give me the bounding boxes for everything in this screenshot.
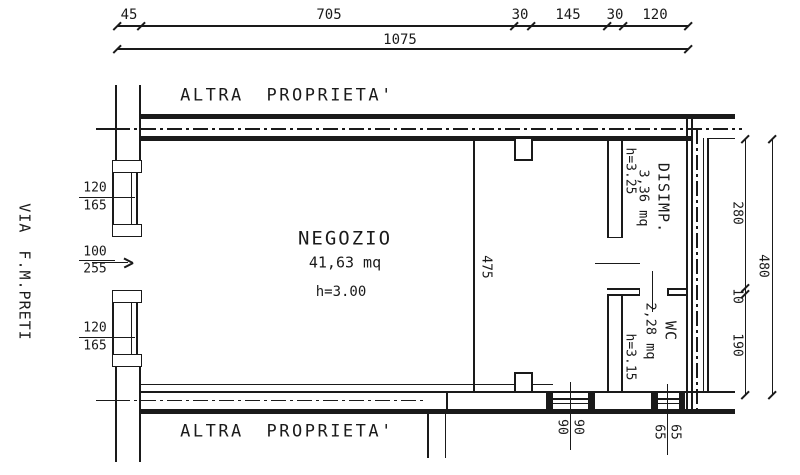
- window-glazing-line: [112, 173, 114, 224]
- label-wc-window-height: 65: [669, 424, 682, 440]
- wall-partition: [607, 141, 609, 238]
- wall-left-outer: [115, 367, 117, 462]
- window-post: [588, 393, 595, 409]
- label-height-negozio: h=3.00: [316, 285, 367, 299]
- window-sill-box: [112, 290, 142, 303]
- wall-wc-top-jamb: [639, 288, 641, 296]
- boundary-tick-left-bottom: [96, 400, 116, 402]
- label-altra-proprieta-top: ALTRA PROPRIETA': [180, 88, 394, 105]
- dim-label-120: 120: [642, 8, 667, 22]
- label-wc-window-width: 65: [653, 424, 666, 440]
- wall-wc-top: [607, 294, 640, 296]
- label-shop-window-width: 90: [556, 419, 569, 435]
- label-area-disimpegno: 3,36 mq: [636, 163, 652, 233]
- window-post: [546, 393, 553, 409]
- window-glazing-line: [136, 173, 138, 224]
- threshold-line: [595, 263, 640, 264]
- window-glazing-line: [131, 173, 133, 224]
- label-altra-proprieta-bottom: ALTRA PROPRIETA': [180, 424, 394, 441]
- window-glazing-line: [658, 398, 679, 400]
- window-glazing-line: [136, 303, 138, 354]
- window-post: [651, 393, 658, 409]
- wall-bottom-inner: [532, 384, 553, 386]
- wall-neighbor-right-top: [707, 138, 735, 140]
- boundary-tick-left-top: [96, 128, 116, 130]
- wall-neighbor-right: [703, 138, 705, 392]
- label-window-upper-width: 120: [83, 182, 106, 195]
- wall-left-outer: [115, 85, 117, 160]
- dim-label-190: 190: [731, 333, 744, 356]
- wall-wc-top: [667, 288, 686, 290]
- wall-bottom-inner: [139, 384, 515, 386]
- label-door-height: 255: [83, 263, 106, 276]
- label-area-wc: 2,28 mq: [643, 303, 659, 360]
- wall-left-inner: [139, 367, 141, 462]
- window-glazing-line: [112, 303, 114, 354]
- pillar-bottom: [514, 372, 533, 392]
- wall-wc-top: [607, 288, 640, 290]
- label-window-upper-height: 165: [83, 200, 106, 213]
- wall-neighbor-bottom-stub: [445, 414, 447, 458]
- wall-unit-top: [139, 136, 693, 141]
- dim-ext-line-wc-window: [667, 384, 668, 455]
- label-room-wc: WC: [662, 303, 680, 360]
- dim-label-30b: 30: [607, 8, 624, 22]
- dim-label-10: 10: [731, 288, 744, 304]
- label-height-wc: h=3.15: [624, 334, 637, 381]
- wall-bottom-mid: [139, 391, 735, 393]
- wall-wc-top: [667, 294, 686, 296]
- wall-neighbor-bottom-stub: [427, 414, 429, 458]
- wall-wc-top-jamb: [667, 288, 669, 296]
- dim-line-right-total: [772, 139, 774, 395]
- window-glazing-line: [658, 403, 679, 405]
- dim-line-right-segments: [745, 139, 747, 395]
- floor-plan: 45 705 30 145 30 120 1075 ALTRA PROPRIET…: [0, 0, 800, 475]
- window-post: [679, 393, 686, 409]
- dim-label-145: 145: [555, 8, 580, 22]
- window-glazing-line: [131, 303, 133, 354]
- window-sill-box: [112, 354, 142, 367]
- label-room-negozio: NEGOZIO: [298, 230, 392, 249]
- dim-label-total-1075: 1075: [383, 33, 417, 47]
- dim-label-45: 45: [121, 8, 138, 22]
- label-area-negozio: 41,63 mq: [309, 256, 381, 271]
- room-block-disimpegno: DISIMP. 3,36 mq: [636, 163, 673, 233]
- dim-label-interior-depth: 475: [480, 255, 493, 278]
- dim-ext-line-shop-window: [570, 382, 571, 450]
- wall-right: [691, 119, 693, 410]
- wall-left-inner: [139, 85, 141, 160]
- label-shop-window-height: 90: [572, 419, 585, 435]
- wall-partition-end: [607, 237, 623, 239]
- boundary-dashdot-bottom: [115, 400, 427, 402]
- wall-right: [686, 119, 688, 410]
- boundary-dashdot-right: [696, 129, 698, 410]
- room-block-wc: WC 2,28 mq: [643, 303, 680, 360]
- dim-line-interior-depth: [473, 141, 475, 391]
- label-door-width: 100: [83, 246, 106, 259]
- label-room-disimpegno: DISIMP.: [655, 163, 673, 233]
- dim-label-705: 705: [316, 8, 341, 22]
- dim-line-top-total: [117, 48, 688, 50]
- label-window-lower-width: 120: [83, 322, 106, 335]
- wall-wc-left: [607, 296, 609, 391]
- window-sill-box: [112, 160, 142, 173]
- wall-bottom-step: [446, 391, 448, 414]
- window-sill-box: [112, 224, 142, 237]
- wall-neighbor-right: [707, 138, 709, 392]
- dim-label-30a: 30: [512, 8, 529, 22]
- label-street: VIA F.M.PRETI: [17, 203, 32, 340]
- dim-label-480: 480: [757, 254, 770, 277]
- boundary-dashdot-top: [115, 128, 742, 130]
- label-window-lower-height: 165: [83, 340, 106, 353]
- dim-label-280: 280: [731, 201, 744, 224]
- pillar-top: [514, 139, 533, 161]
- wall-neighbor-top: [139, 114, 735, 119]
- wall-bottom-outer: [139, 409, 735, 414]
- label-height-disimpegno: h=3.25: [624, 148, 637, 195]
- entrance-arrow-shaft: [92, 262, 128, 264]
- dim-line-top-segments: [117, 25, 688, 27]
